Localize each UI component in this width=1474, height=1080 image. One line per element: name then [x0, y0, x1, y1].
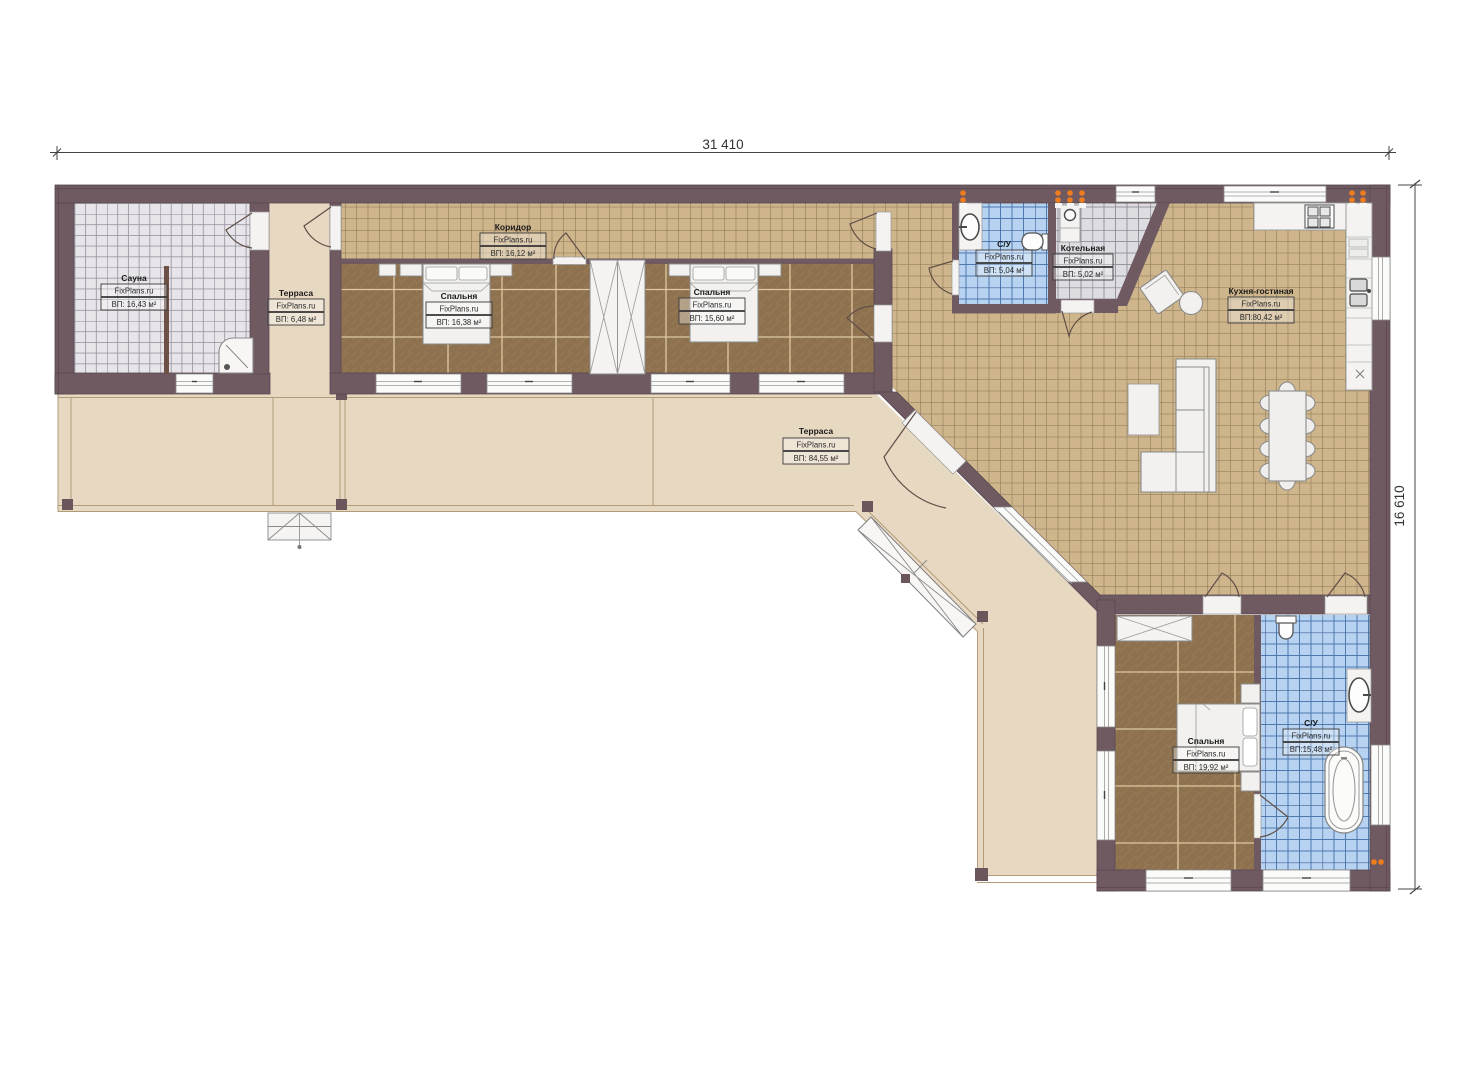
svg-text:Кухня-гостиная: Кухня-гостиная [1228, 286, 1293, 296]
svg-text:ВП: 16,12 м²: ВП: 16,12 м² [491, 249, 536, 258]
svg-text:ВП: 84,55 м²: ВП: 84,55 м² [794, 454, 839, 463]
svg-text:ВП: 6,48 м²: ВП: 6,48 м² [276, 315, 317, 324]
svg-text:FixPlans.ru: FixPlans.ru [494, 236, 533, 245]
svg-text:FixPlans.ru: FixPlans.ru [277, 302, 316, 311]
svg-text:С/У: С/У [1304, 718, 1319, 728]
svg-text:Спальня: Спальня [441, 291, 478, 301]
svg-text:ВП: 16,43 м²: ВП: 16,43 м² [112, 300, 157, 309]
svg-text:FixPlans.ru: FixPlans.ru [1242, 300, 1281, 309]
svg-text:31 410: 31 410 [702, 137, 743, 152]
svg-text:Терраса: Терраса [279, 288, 313, 298]
svg-text:Спальня: Спальня [694, 287, 731, 297]
svg-text:ВП:15,48 м²: ВП:15,48 м² [1290, 745, 1333, 754]
svg-text:FixPlans.ru: FixPlans.ru [115, 287, 154, 296]
svg-text:ВП: 5,02 м²: ВП: 5,02 м² [1063, 270, 1104, 279]
svg-text:FixPlans.ru: FixPlans.ru [693, 301, 732, 310]
svg-text:ВП: 15,60 м²: ВП: 15,60 м² [690, 314, 735, 323]
svg-text:Терраса: Терраса [799, 426, 833, 436]
svg-text:FixPlans.ru: FixPlans.ru [1187, 750, 1226, 759]
svg-text:FixPlans.ru: FixPlans.ru [1064, 257, 1103, 266]
svg-text:Сауна: Сауна [121, 273, 147, 283]
svg-text:FixPlans.ru: FixPlans.ru [985, 253, 1024, 262]
svg-text:FixPlans.ru: FixPlans.ru [797, 441, 836, 450]
svg-text:Коридор: Коридор [495, 222, 532, 232]
svg-text:ВП: 16,38 м²: ВП: 16,38 м² [437, 318, 482, 327]
svg-text:ВП: 5,04 м²: ВП: 5,04 м² [984, 266, 1025, 275]
svg-text:С/У: С/У [997, 239, 1012, 249]
svg-text:ВП:80,42 м²: ВП:80,42 м² [1240, 313, 1283, 322]
svg-text:FixPlans.ru: FixPlans.ru [1292, 732, 1331, 741]
svg-text:Котельная: Котельная [1061, 243, 1106, 253]
svg-text:16 610: 16 610 [1392, 485, 1407, 526]
svg-text:ВП: 19,92 м²: ВП: 19,92 м² [1184, 763, 1229, 772]
svg-text:Спальня: Спальня [1188, 736, 1225, 746]
svg-text:FixPlans.ru: FixPlans.ru [440, 305, 479, 314]
